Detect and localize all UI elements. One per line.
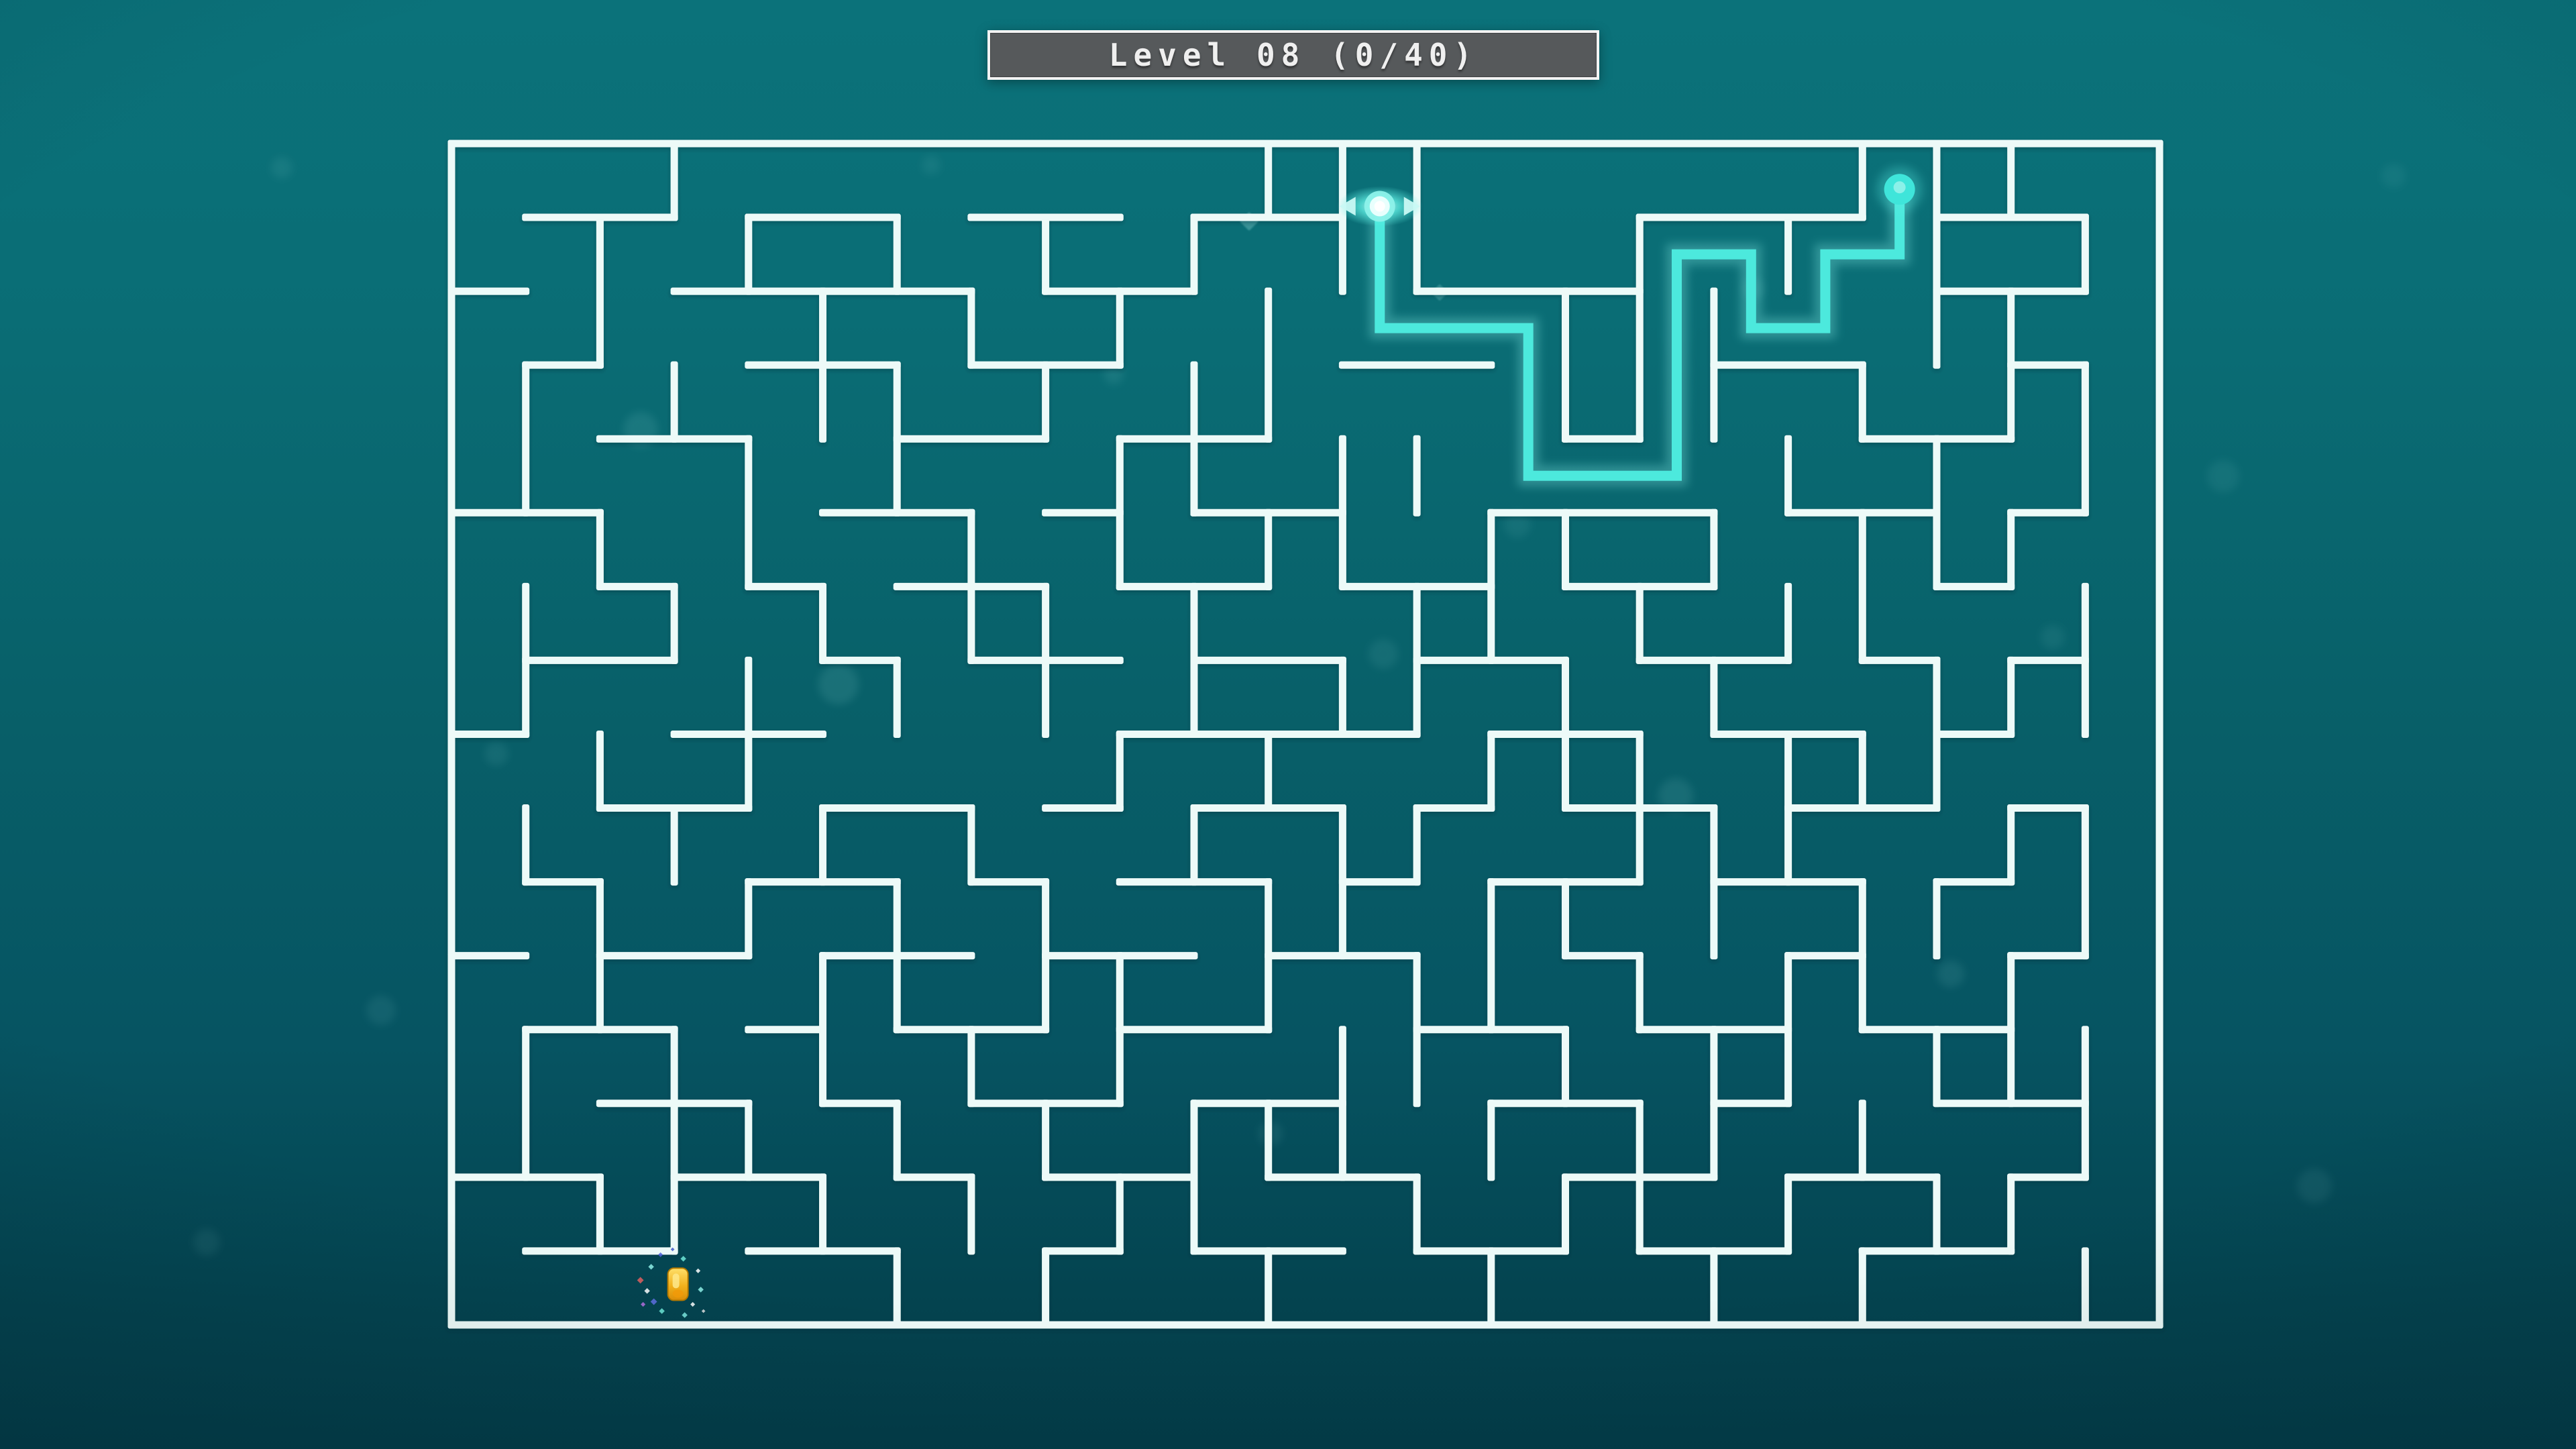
gem-sparkle [702,1309,706,1313]
maze-wall [2007,952,2089,959]
maze-wall [596,1173,604,1254]
maze-wall [2082,362,2089,517]
maze-wall [819,288,826,443]
maze-wall [1710,804,1717,959]
maze-wall [522,657,678,664]
maze-wall [1710,1099,1792,1107]
maze-wall [1933,731,2015,738]
maze-wall [1413,583,1421,738]
maze-wall [1562,288,1569,443]
maze-wall [1042,583,1049,738]
maze-wall [522,878,604,885]
maze-wall [745,657,752,812]
maze-wall [1562,1173,1569,1254]
maze-wall [1190,583,1197,738]
maze-wall [819,657,901,664]
maze-wall [1116,288,1124,369]
gem-sparkle [651,1298,657,1305]
maze-wall [2007,509,2015,590]
maze-wall [522,804,529,885]
maze-wall [1710,657,1717,738]
maze-wall [894,362,901,517]
maze-wall [745,435,752,590]
maze-wall [1190,214,1197,295]
maze-wall [1933,657,1940,812]
maze-wall [1339,435,1346,590]
player-icon[interactable] [1337,186,1423,227]
maze-wall [1859,1099,1866,1181]
maze-wall [1265,288,1272,443]
maze-wall [2007,288,2015,443]
maze-wall [2007,952,2015,1107]
maze-wall [2007,1173,2015,1254]
gem-sparkle [680,1256,686,1261]
maze-wall [1784,952,1792,1107]
gem-sparkle [696,1269,700,1273]
maze-wall [1190,1099,1197,1254]
maze-wall [1042,878,1049,1033]
maze-wall [1487,509,1717,517]
maze-wall [1859,509,1866,664]
maze-wall [1487,1247,1495,1328]
maze-wall [448,952,530,959]
maze-wall [1784,435,1792,517]
maze-wall [1190,657,1346,664]
maze-wall [894,1173,975,1181]
maze-wall [1413,952,1421,1107]
maze-wall [522,583,529,738]
bokeh-particle [2297,1169,2332,1203]
maze-wall [819,1173,826,1254]
maze-wall [2007,804,2015,885]
maze-wall [1042,1247,1124,1254]
maze-wall [745,583,826,590]
maze-wall [1710,288,1717,443]
maze-wall [1859,1247,1866,1328]
gem-sparkle [659,1308,664,1313]
maze-wall [2082,1247,2089,1328]
maze-wall [1933,140,1940,368]
maze-wall [2007,1173,2089,1181]
maze-board[interactable] [435,127,2176,1341]
maze-wall [967,509,975,664]
maze-wall [1710,1026,1717,1181]
maze-wall [1265,731,1272,812]
gem-sparkle [690,1302,695,1307]
maze-wall [2156,140,2163,1328]
maze-wall [448,140,2163,147]
maze-wall [819,804,975,812]
maze-wall [1116,731,1124,812]
goal-dot [1877,166,1923,212]
maze-wall [967,1173,975,1254]
maze-wall [1339,362,1495,369]
maze-wall [967,878,1049,885]
maze-wall [745,214,752,295]
maze-wall [894,878,901,1033]
maze-wall [596,509,604,590]
maze-wall [2007,804,2089,812]
maze-wall [1636,731,1644,885]
maze-wall [745,214,900,221]
maze-wall [819,583,826,664]
maze-wall [894,1247,901,1328]
maze-wall [819,952,826,1107]
maze-wall [671,804,678,885]
maze-wall [1042,509,1124,517]
maze-wall [1562,435,1644,443]
maze-wall [671,140,678,221]
maze-wall [1265,140,1272,221]
maze-wall [1190,362,1197,517]
gem-item [637,1248,706,1318]
maze-wall [1116,952,1124,1107]
maze-wall [1784,583,1792,664]
maze-wall [1562,657,1569,812]
maze-wall [1265,878,1272,1033]
maze-wall [2007,657,2089,664]
maze-wall [1116,1173,1124,1254]
maze-wall [967,288,975,369]
maze-wall [1339,804,1346,959]
maze-wall [1116,1026,1272,1033]
maze-wall [1042,214,1049,295]
maze-wall [1487,1099,1495,1181]
maze-wall [1784,731,1792,885]
maze-wall [1042,1247,1049,1328]
maze-wall [1042,362,1049,443]
maze-wall [967,804,975,885]
maze-wall [1859,878,1866,1033]
maze-wall [2082,583,2089,738]
bokeh-particle [2381,164,2406,188]
maze-svg [435,127,2176,1341]
maze-wall [1636,214,1644,443]
maze-wall [1933,435,1940,590]
gem-sparkle [648,1264,653,1269]
maze-wall [1116,435,1124,590]
maze-wall [596,583,678,590]
maze-wall [1562,952,1644,959]
maze-wall [1413,288,1644,295]
maze-wall [1413,804,1421,885]
bokeh-particle [366,996,396,1025]
maze-wall [2082,804,2089,959]
maze-wall [2007,657,2015,738]
maze-wall [1933,878,2015,885]
maze-wall [1859,731,1866,812]
maze-wall [894,214,901,295]
maze-wall [1265,1099,1272,1181]
maze-wall [1933,1026,1940,1107]
maze-wall [2007,140,2015,221]
maze-wall [1190,804,1197,885]
maze-wall [745,1026,826,1033]
maze-wall [596,952,752,959]
maze-wall [1562,1026,1569,1107]
maze-wall [1487,509,1495,664]
maze-wall [671,1026,678,1254]
maze-wall [2082,214,2089,295]
maze-wall [596,878,604,1033]
maze-wall [1562,509,1569,590]
maze-wall [671,362,678,443]
maze-wall [894,1099,901,1181]
maze-wall [2007,509,2089,517]
maze-wall [1933,878,1940,959]
gem-sparkle [698,1287,703,1292]
maze-wall [967,1026,975,1107]
maze-wall [1636,583,1644,664]
gem-sparkle [637,1277,644,1283]
level-indicator: Level 08 (0/40) [987,30,1599,80]
gem-sparkle [644,1288,649,1293]
maze-wall [1784,1173,1792,1254]
maze-wall [1487,878,1495,1033]
maze-wall [2007,362,2089,369]
maze-wall [894,657,901,738]
maze-wall [1042,1099,1049,1181]
gem-sparkle [641,1302,645,1307]
gem-sparkle [682,1312,687,1318]
maze-wall [1265,1247,1272,1328]
maze-wall [819,1099,901,1107]
maze-wall [671,583,678,664]
maze-wall [1487,731,1495,812]
maze-wall [1710,509,1717,590]
maze-wall [894,435,1049,443]
maze-wall [522,1026,529,1181]
maze-wall [1933,1173,1940,1254]
maze-wall [819,804,826,885]
maze-wall [1933,583,2015,590]
maze-wall [448,288,530,295]
maze-wall [1265,509,1272,590]
maze-wall [1042,804,1124,812]
maze-wall [1636,214,1866,221]
maze-wall [522,362,604,369]
maze-wall [745,1099,752,1181]
maze-wall [745,878,752,959]
maze-wall [1339,1026,1346,1181]
maze-wall [596,731,604,812]
maze-wall [1859,140,1866,221]
maze-wall [1710,362,1866,369]
maze-wall [448,1321,2163,1328]
maze-wall [1339,657,1346,738]
maze-wall [1636,952,1644,1033]
maze-wall [1413,1173,1421,1254]
level-indicator-label: Level 08 (0/40) [1109,37,1478,73]
maze-wall [1859,362,1866,443]
maze-wall [522,362,529,517]
maze-wall [1413,435,1421,517]
maze-wall [448,731,530,738]
bokeh-particle [271,157,292,178]
maze-wall [1339,878,1421,885]
maze-wall [1710,1247,1717,1328]
maze-wall [1413,804,1495,812]
maze-wall [596,214,604,369]
game-screen: Level 08 (0/40) [0,0,2576,1449]
maze-wall [1784,214,1792,295]
maze-wall [448,140,455,1328]
maze-wall [1784,952,1866,959]
maze-wall [1859,657,1941,664]
bokeh-particle [2207,460,2239,492]
maze-wall [2082,1026,2089,1181]
bokeh-particle [193,1229,220,1256]
maze-wall [1562,878,1569,959]
maze-walls [448,140,2163,1328]
maze-wall [1636,1099,1644,1254]
